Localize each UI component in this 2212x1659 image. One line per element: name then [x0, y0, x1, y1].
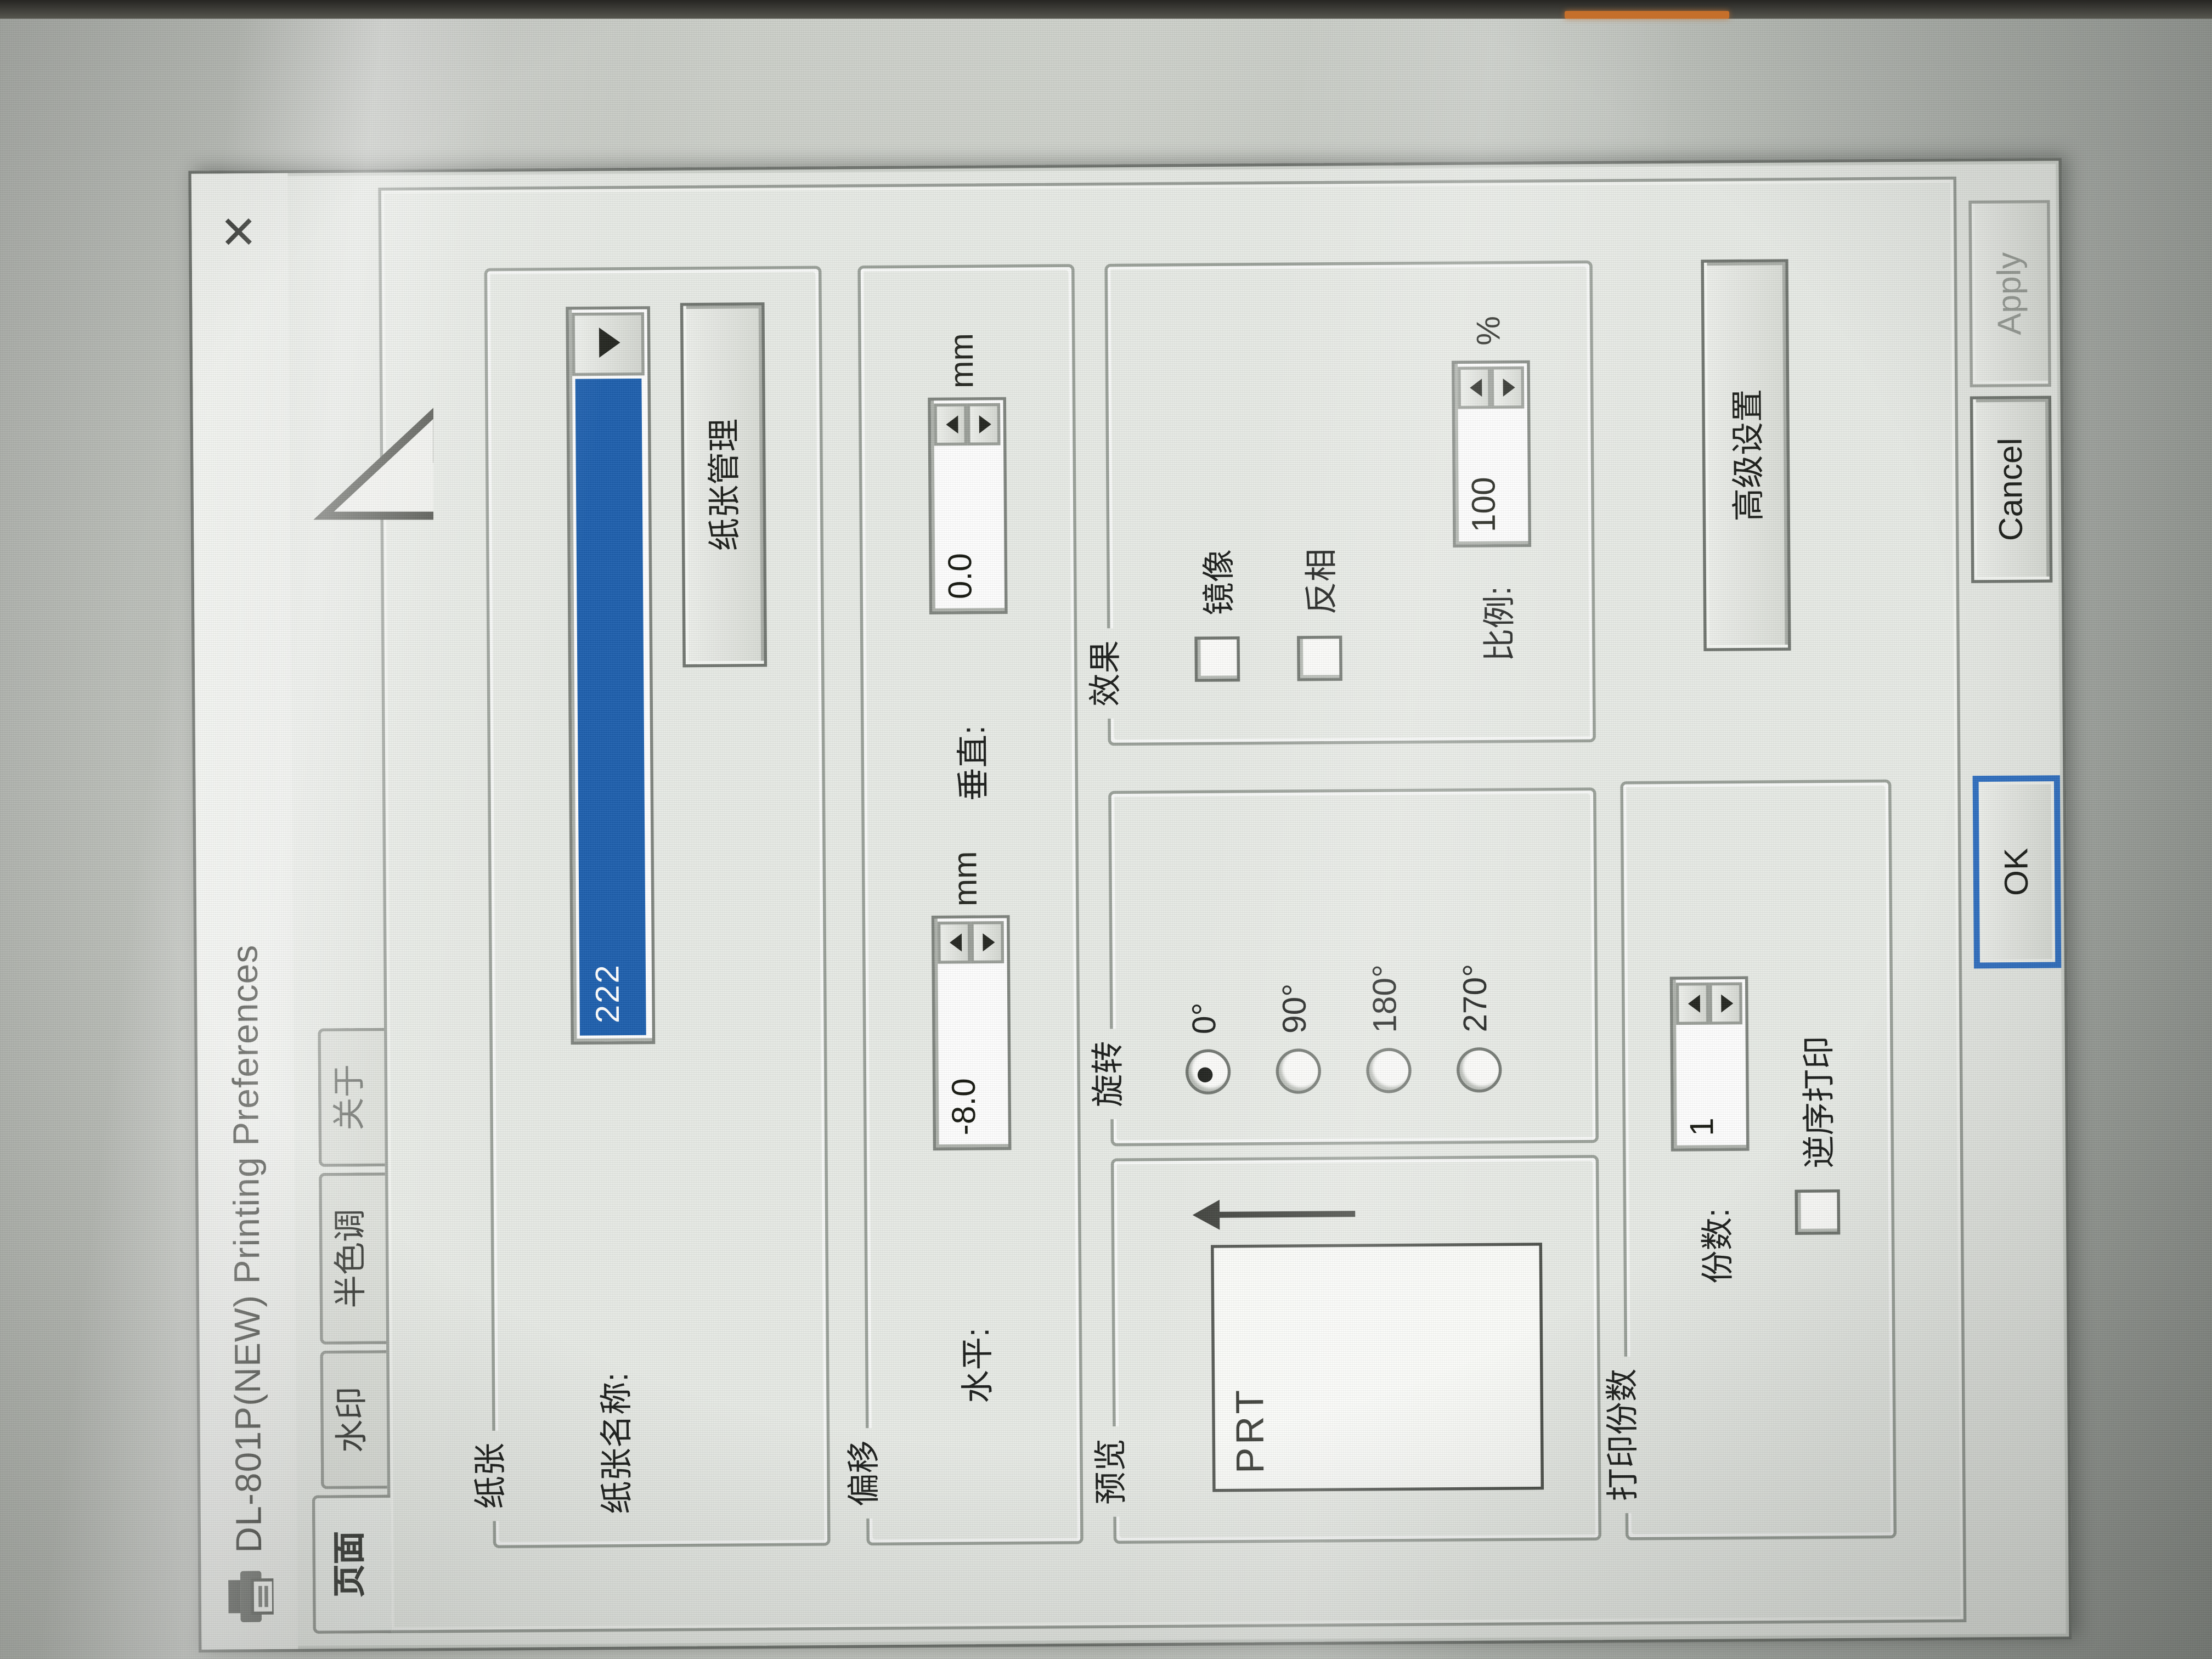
paper-name-label: 纸张名称:	[591, 1372, 641, 1514]
bezel-accent-strip	[1565, 11, 1729, 19]
combo-dropdown-button[interactable]	[572, 312, 645, 376]
vertical-offset-spinner[interactable]: 0.0	[928, 397, 1007, 614]
offset-group: 偏移 水平: -8.0 mm 垂直: 0.0	[857, 264, 1084, 1545]
spin-up-icon[interactable]	[1458, 366, 1491, 409]
chevron-down-icon	[597, 329, 619, 359]
cancel-button[interactable]: Cancel	[1970, 396, 2053, 583]
effect-group: 效果 镜像 反相 比例: 100 %	[1104, 261, 1595, 746]
rotation-option-0[interactable]: 0°	[1188, 1002, 1224, 1034]
cancel-button-label: Cancel	[1993, 438, 2029, 541]
radio-180-icon[interactable]	[1366, 1048, 1412, 1093]
close-icon[interactable]: ✕	[211, 200, 269, 263]
spinner-buttons	[938, 921, 1004, 964]
vertical-offset-unit: mm	[945, 333, 982, 388]
arrow-up-icon	[1193, 1199, 1356, 1230]
vertical-offset-value: 0.0	[931, 448, 1005, 611]
vertical-offset-label: 垂直:	[948, 725, 997, 801]
spin-up-icon[interactable]	[938, 921, 971, 963]
copies-count-value: 1	[1673, 1028, 1746, 1149]
printing-preferences-dialog: DL-801P(NEW) Printing Preferences ✕ 页面 水…	[188, 158, 2072, 1653]
horizontal-offset-value: -8.0	[935, 966, 1008, 1147]
advanced-settings-button[interactable]: 高级设置	[1701, 259, 1791, 651]
tab-page-panel: 纸张 纸张名称: 222 纸张管理 偏移 水平: -8.0	[378, 177, 1966, 1633]
copies-group: 打印份数 份数: 1 逆序打印	[1620, 780, 1897, 1541]
spin-up-icon[interactable]	[1676, 983, 1709, 1025]
reverse-print-label: 逆序打印	[1793, 1036, 1843, 1169]
effect-group-label: 效果	[1086, 628, 1129, 719]
paper-manage-button-label: 纸张管理	[699, 419, 748, 551]
preview-page: PRT	[1211, 1243, 1544, 1492]
preview-group: 预览 PRT	[1111, 1155, 1601, 1544]
scale-unit: %	[1472, 316, 1509, 346]
tab-strip: 页面 水印 半色调 关于	[306, 1022, 388, 1634]
reverse-print-checkbox[interactable]	[1795, 1189, 1840, 1235]
scale-label: 比例:	[1474, 586, 1523, 662]
rotation-group: 旋转 0° 90° 180° 270°	[1108, 787, 1599, 1146]
spinner-buttons	[934, 403, 1000, 446]
apply-button-label: Apply	[1991, 252, 2028, 335]
preview-page-text: PRT	[1227, 1387, 1272, 1474]
rotation-option-270[interactable]: 270°	[1459, 963, 1496, 1032]
paper-name-value: 222	[575, 379, 646, 1036]
spin-up-icon[interactable]	[934, 403, 967, 445]
scale-value: 100	[1455, 411, 1528, 544]
spin-down-icon[interactable]	[970, 921, 1004, 963]
invert-label: 反相	[1296, 548, 1345, 614]
monitor-bezel	[0, 0, 2212, 19]
printer-icon	[227, 1571, 272, 1622]
paper-name-combobox[interactable]: 222	[566, 306, 655, 1045]
paper-manage-button[interactable]: 纸张管理	[680, 302, 767, 667]
spinner-buttons	[1458, 366, 1524, 409]
horizontal-offset-spinner[interactable]: -8.0	[932, 915, 1012, 1150]
mouse-cursor-icon	[236, 340, 433, 538]
tab-watermark[interactable]: 水印	[320, 1350, 387, 1489]
rotation-option-180[interactable]: 180°	[1368, 964, 1405, 1033]
apply-button: Apply	[1968, 200, 2051, 387]
copies-count-spinner[interactable]: 1	[1670, 976, 1750, 1151]
ok-button[interactable]: OK	[1973, 775, 2062, 968]
spin-down-icon[interactable]	[1709, 982, 1742, 1024]
copies-group-label: 打印份数	[1603, 1356, 1646, 1513]
rotation-group-label: 旋转	[1089, 1029, 1132, 1119]
spinner-buttons	[1676, 982, 1742, 1025]
photo-of-screen: DL-801P(NEW) Printing Preferences ✕ 页面 水…	[0, 0, 2212, 1659]
spin-down-icon[interactable]	[967, 403, 1001, 445]
rotation-option-90[interactable]: 90°	[1278, 983, 1315, 1034]
paper-group-label: 纸张	[471, 1431, 514, 1521]
radio-270-icon[interactable]	[1457, 1047, 1502, 1093]
horizontal-offset-label: 水平:	[952, 1328, 1001, 1403]
scale-spinner[interactable]: 100	[1452, 360, 1531, 548]
paper-group: 纸张 纸张名称: 222 纸张管理	[484, 266, 830, 1548]
radio-0-icon[interactable]	[1186, 1049, 1231, 1094]
ok-button-label: OK	[1999, 848, 2035, 896]
offset-group-label: 偏移	[845, 1428, 888, 1519]
radio-90-icon[interactable]	[1276, 1048, 1321, 1094]
tab-about[interactable]: 关于	[318, 1028, 385, 1167]
copies-count-label: 份数:	[1692, 1208, 1741, 1284]
window-title: DL-801P(NEW) Printing Preferences	[224, 944, 270, 1553]
mirror-label: 镜像	[1194, 549, 1243, 616]
spin-down-icon[interactable]	[1491, 366, 1524, 409]
mirror-checkbox[interactable]	[1194, 636, 1240, 682]
advanced-settings-button-label: 高级设置	[1722, 389, 1771, 522]
tab-page[interactable]: 页面	[312, 1495, 391, 1634]
invert-checkbox[interactable]	[1297, 636, 1342, 681]
preview-group-label: 预览	[1092, 1426, 1135, 1517]
tab-halftone[interactable]: 半色调	[319, 1172, 386, 1345]
horizontal-offset-unit: mm	[949, 851, 986, 906]
